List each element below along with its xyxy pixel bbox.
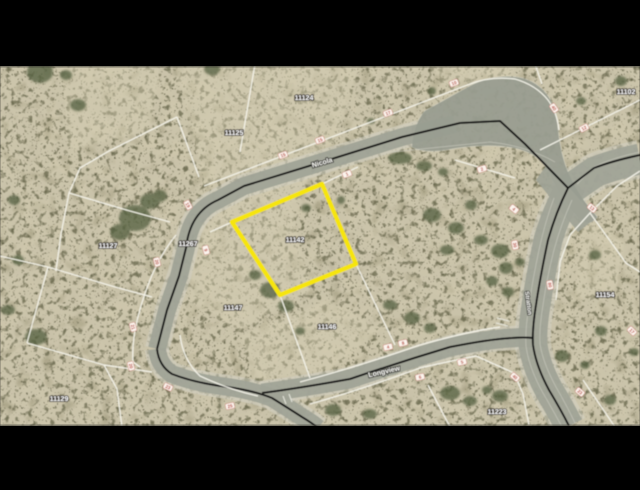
svg-text:11127: 11127: [99, 243, 118, 250]
svg-text:11267: 11267: [178, 241, 197, 248]
svg-text:11146: 11146: [318, 324, 337, 331]
svg-text:11124: 11124: [295, 95, 314, 102]
svg-text:11223: 11223: [487, 409, 506, 416]
svg-text:11129: 11129: [50, 396, 69, 403]
svg-text:11147: 11147: [224, 305, 243, 312]
svg-text:11125: 11125: [225, 130, 244, 137]
svg-text:11154: 11154: [596, 292, 615, 299]
svg-text:11142: 11142: [286, 237, 305, 244]
svg-text:11102: 11102: [617, 89, 636, 96]
